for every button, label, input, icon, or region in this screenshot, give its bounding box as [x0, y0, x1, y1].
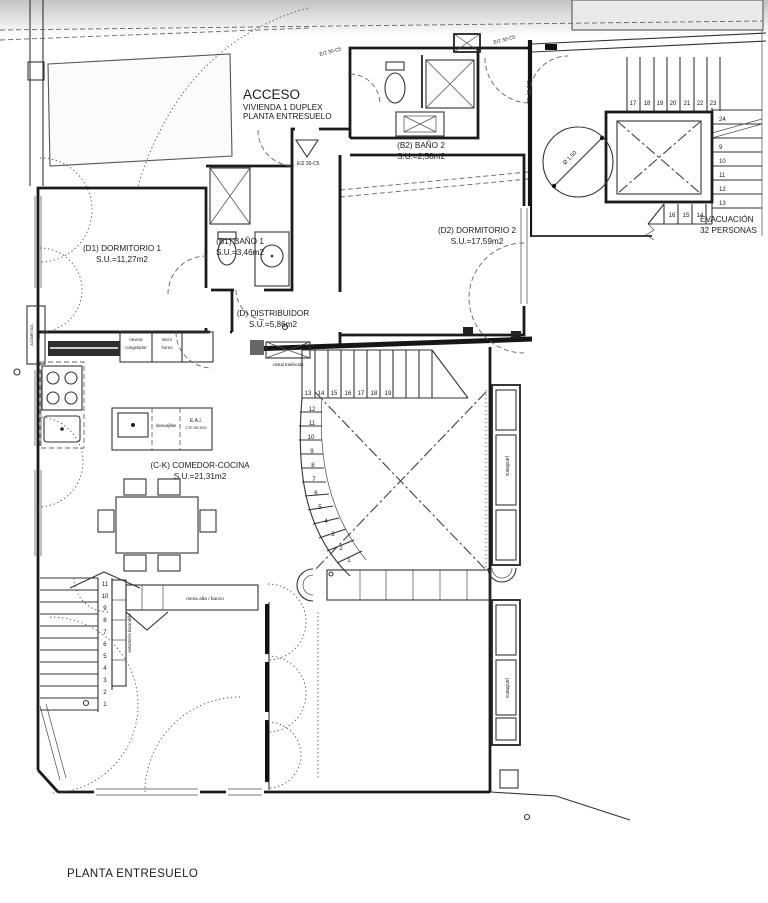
estanteria-label: estantería barandilla — [127, 613, 132, 653]
room-b2-name: (B2) BAÑO 2 — [397, 140, 445, 150]
tread-number: 10 — [719, 158, 726, 165]
access-line2: VIVIENDA 1 DUPLEX — [243, 103, 323, 112]
lavavajillas-label: lavavajillas — [156, 423, 177, 428]
tread-number: 19 — [657, 100, 664, 107]
sheet-title: PLANTA ENTRESUELO — [67, 868, 198, 880]
cristal-label: cristal traslúcido — [273, 362, 304, 367]
room-d1-area: S.U.=11,27m2 — [96, 255, 148, 264]
room-d2-area: S.U.=17,59m2 — [451, 237, 504, 246]
fire-rating-label: EI2 30-C5 — [297, 161, 320, 167]
congelador-label: congelador — [125, 345, 147, 350]
tread-number: 11 — [102, 581, 109, 588]
tread-number: 16 — [345, 390, 352, 397]
room-dist-area: S.U.=5,86m2 — [249, 320, 297, 329]
micro-label: micro — [162, 337, 173, 342]
tread-number: 24 — [719, 116, 726, 123]
eai-label: E.A.I. — [190, 418, 202, 424]
tread-number: 19 — [385, 390, 392, 397]
tread-number: 15 — [331, 390, 338, 397]
mesa-label: mesa alta / banco — [186, 596, 224, 602]
tread-number: 18 — [371, 390, 378, 397]
evacuation-label-1: EVACUACIÓN — [700, 214, 754, 224]
nevera-label: nevera — [129, 337, 143, 342]
tread-number: 11 — [309, 420, 316, 427]
tread-number: 13 — [305, 390, 312, 397]
tread-number: 22 — [697, 100, 704, 107]
tread-number: 12 — [309, 406, 316, 413]
room-b2-area: S.U.=2,58m2 — [397, 152, 445, 161]
tread-number: 18 — [644, 100, 651, 107]
tread-number: 17 — [358, 390, 365, 397]
tread-number: 10 — [102, 593, 109, 600]
room-b1-name: (B1) BAÑO 1 — [216, 236, 264, 246]
access-title: ACCESO — [243, 87, 300, 102]
floor-plan-sheet: cristal traslúcido nevera congelador mic… — [0, 0, 768, 903]
acometida-label: ACOMETIDA — [30, 324, 34, 346]
room-ck-area: S.U.=21,31m2 — [174, 472, 227, 481]
eai-sub-label: CTE DB HS2 — [185, 426, 206, 430]
tread-number: 10 — [308, 434, 315, 441]
tread-number: 13 — [719, 200, 726, 207]
evacuation-label-2: 32 PERSONAS — [700, 226, 757, 235]
jardinera-label: jardinera — [504, 455, 510, 476]
tread-number: 20 — [670, 100, 677, 107]
floor-plan-drawing: cristal traslúcido nevera congelador mic… — [0, 0, 768, 903]
tread-number: 12 — [719, 186, 726, 193]
access-line3: PLANTA ENTRESUELO — [243, 112, 332, 121]
horno-label: horno — [162, 345, 174, 350]
gas-label: GAS — [37, 331, 41, 339]
tread-number: 23 — [710, 100, 717, 107]
room-ck-name: (C-K) COMEDOR-COCINA — [150, 461, 250, 470]
tread-number: 21 — [684, 100, 691, 107]
room-b1-area: S.U.=3,46m2 — [216, 248, 264, 257]
tread-number: 15 — [683, 212, 690, 219]
fire-rating-label: EI2 30-C5 — [525, 81, 531, 104]
tread-number: 17 — [630, 100, 637, 107]
jardinera-label: jardinera — [504, 677, 510, 698]
tread-number: 11 — [719, 172, 726, 179]
tread-number: 16 — [669, 212, 676, 219]
room-dist-name: (D) DISTRIBUIDOR — [237, 309, 309, 318]
room-d2-name: (D2) DORMITORIO 2 — [438, 226, 517, 235]
room-d1-name: (D1) DORMITORIO 1 — [83, 244, 162, 253]
